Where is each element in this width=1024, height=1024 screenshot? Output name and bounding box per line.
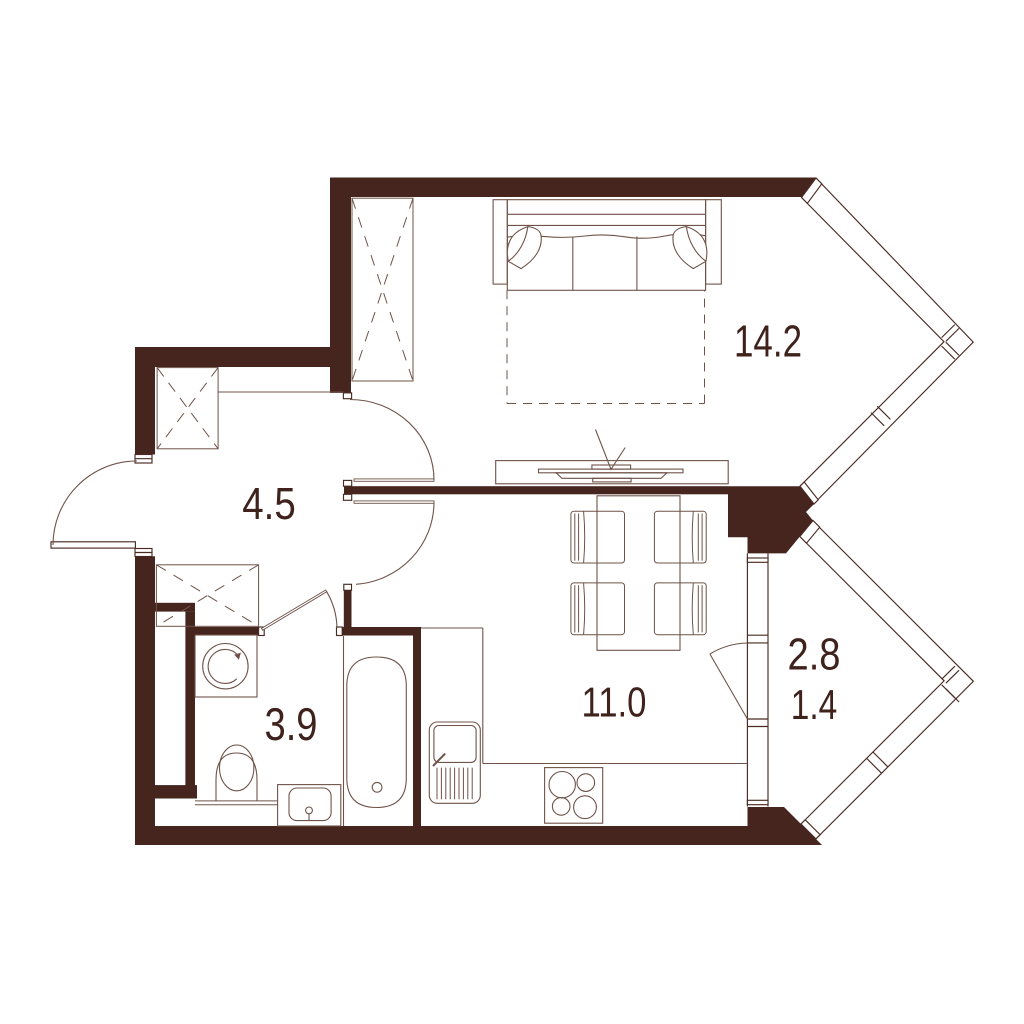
svg-text:3.9: 3.9 (265, 698, 318, 750)
svg-text:11.0: 11.0 (582, 679, 647, 726)
svg-text:1.4: 1.4 (791, 681, 838, 728)
svg-text:14.2: 14.2 (734, 316, 802, 367)
svg-text:2.8: 2.8 (788, 629, 841, 680)
svg-text:4.5: 4.5 (242, 478, 296, 529)
